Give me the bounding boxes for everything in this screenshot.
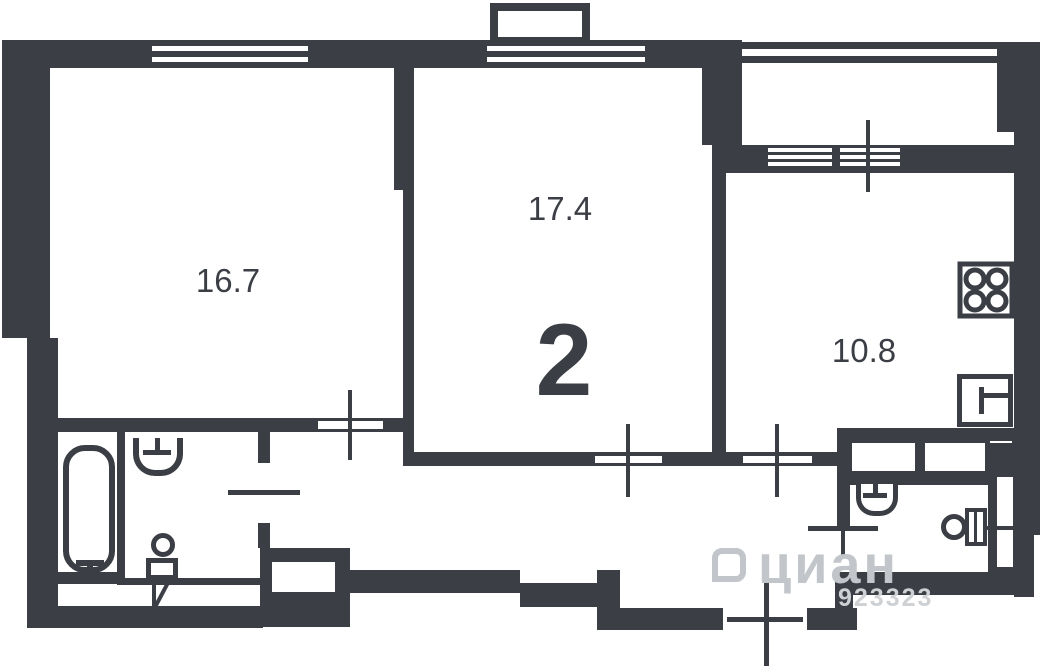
entrance-threshold: [727, 617, 803, 622]
wall-segment: [1014, 42, 1040, 535]
kitchen-sink-tap-icon: [979, 393, 1012, 398]
door-marker-icon: [626, 424, 630, 497]
window-icon: [840, 155, 900, 159]
window-icon: [768, 148, 832, 152]
toilet-icon: [151, 533, 175, 557]
wall-segment: [117, 432, 125, 578]
wall-segment: [403, 190, 414, 455]
window-icon: [152, 40, 308, 46]
wall-segment: [258, 523, 270, 548]
toilet-tank-icon: [146, 558, 178, 580]
duct-shaft-inner: [272, 562, 335, 592]
cabinet-box: [925, 443, 985, 471]
wall-segment: [597, 570, 620, 630]
balcony-glazing: [742, 56, 997, 63]
wall-segment: [27, 606, 263, 628]
window-icon: [152, 51, 308, 57]
wall-segment: [394, 40, 414, 190]
wall-segment: [620, 608, 723, 630]
window-icon: [487, 62, 645, 68]
wall-segment: [520, 583, 597, 607]
toilet-tank-line: [974, 512, 977, 542]
wall-segment: [258, 432, 270, 463]
room-count-label: 2: [504, 302, 624, 419]
wall-niche: [997, 477, 1013, 567]
wall-segment: [1014, 535, 1034, 597]
window-icon: [487, 51, 645, 57]
floorplan: 16.7 17.4 10.8 2 циан 923323: [0, 0, 1044, 666]
wall-segment: [350, 570, 520, 593]
door-marker-icon: [348, 390, 352, 460]
kitchen-sink-icon: [957, 374, 1013, 427]
kitchen-sink-tap-icon: [979, 387, 984, 414]
wall-segment: [702, 60, 742, 145]
wall-segment: [712, 145, 726, 457]
window-icon: [840, 148, 900, 152]
bathtub-icon: [63, 445, 115, 573]
window-icon: [768, 162, 832, 166]
door-marker-icon: [990, 507, 994, 553]
balcony-glazing: [742, 42, 997, 49]
washer-box: [852, 443, 915, 471]
window-icon: [840, 162, 900, 166]
wall-segment: [414, 40, 487, 68]
door-marker-icon: [866, 120, 870, 192]
room-area-label-bedroom: 17.4: [500, 190, 620, 228]
bathtub-tap-icon: [87, 566, 93, 582]
room-area-label-kitchen: 10.8: [804, 332, 924, 370]
window-icon: [768, 155, 832, 159]
watermark-logo-icon: [712, 548, 746, 582]
room-area-label-living: 16.7: [168, 262, 288, 300]
watermark-code: 923323: [838, 584, 933, 613]
vent-box-inner: [498, 11, 582, 37]
wall-segment: [27, 338, 58, 628]
door-marker-icon: [775, 424, 779, 497]
stove-icon: [957, 261, 1015, 319]
door-marker-icon: [228, 490, 300, 495]
window-icon: [152, 62, 308, 68]
wall-segment: [2, 40, 50, 338]
toilet-icon: [941, 514, 967, 540]
sink-tap-icon: [143, 450, 171, 455]
sink-tap-icon: [863, 493, 887, 498]
wall-segment: [117, 578, 270, 585]
